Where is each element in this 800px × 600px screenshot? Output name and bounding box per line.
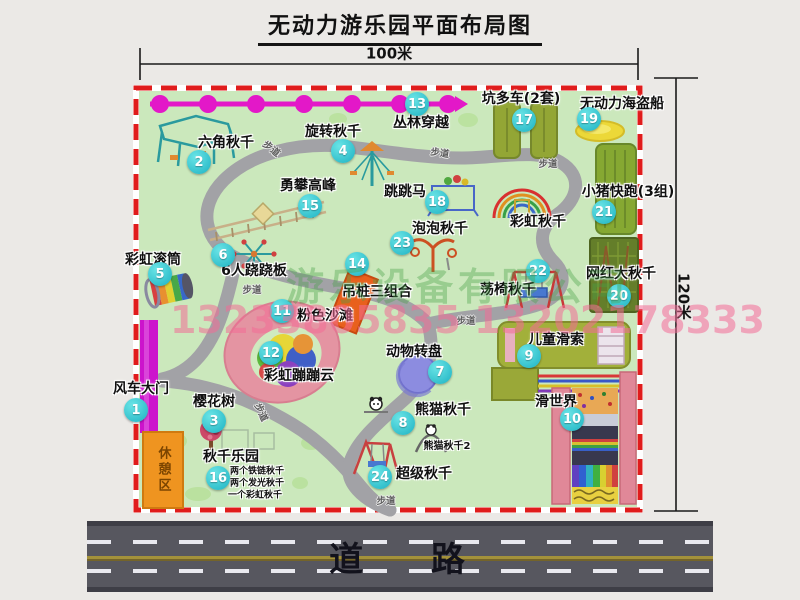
attraction-6-label: 6人跷跷板 (221, 264, 287, 278)
attraction-11-label: 粉色沙滩 (297, 309, 353, 323)
rainbow-swing-label: 彩虹秋千 (510, 215, 566, 229)
attraction-6-badge: 6 (211, 243, 235, 267)
attraction-17-badge: 17 (512, 108, 536, 132)
path-label-2: 步道 (430, 144, 451, 161)
swing-park-note-3: 一个彩虹秋千 (228, 492, 282, 501)
attraction-19-badge: 19 (577, 107, 601, 131)
attraction-7-badge: 7 (428, 360, 452, 384)
attraction-8-label: 熊猫秋千 (415, 403, 471, 417)
swing-park-note-2: 两个发光秋千 (230, 480, 284, 489)
attraction-4-badge: 4 (331, 139, 355, 163)
attraction-10-badge: 10 (560, 407, 584, 431)
path-label-3: 步道 (538, 156, 557, 170)
attraction-13-label: 丛林穿越 (393, 116, 449, 130)
attraction-3-label: 樱花树 (193, 395, 235, 409)
attraction-18-label: 跳跳马 (384, 185, 426, 199)
width-dimension-label: 100米 (366, 43, 412, 64)
attraction-11-badge: 11 (270, 299, 294, 323)
attraction-23-label: 泡泡秋千 (412, 222, 468, 236)
attraction-7-label: 动物转盘 (386, 345, 442, 359)
attraction-12-label: 彩虹蹦蹦云 (264, 369, 334, 383)
panda-swing-2-label: 熊猫秋千2 (424, 442, 471, 452)
attraction-17-label: 坑多车(2套) (482, 92, 561, 106)
attraction-3-badge: 3 (202, 409, 226, 433)
height-dimension-label: 120米 (674, 273, 695, 319)
road-label: 道 路 (87, 526, 713, 587)
attraction-21-badge: 21 (592, 200, 616, 224)
attraction-20-label: 网红大秋千 (586, 267, 656, 281)
attraction-23-badge: 23 (390, 231, 414, 255)
path-label-4: 步道 (242, 282, 261, 296)
attraction-2-label: 六角秋千 (198, 136, 254, 150)
path-label-5: 步道 (456, 313, 475, 327)
attraction-12-badge: 12 (259, 341, 283, 365)
attraction-8-badge: 8 (391, 411, 415, 435)
attraction-15-badge: 15 (298, 194, 322, 218)
slide-world-icon (552, 372, 636, 504)
attraction-1-badge: 1 (124, 398, 148, 422)
attraction-16-label: 秋千乐园 (203, 450, 259, 464)
attraction-5-badge: 5 (148, 262, 172, 286)
attraction-24-badge: 24 (368, 465, 392, 489)
attraction-21-label: 小猪快跑(3组) (582, 185, 675, 199)
attraction-9-label: 儿童滑索 (528, 333, 584, 347)
attraction-4-label: 旋转秋千 (305, 125, 361, 139)
attraction-9-badge: 9 (517, 344, 541, 368)
attraction-16-badge: 16 (206, 466, 230, 490)
path-label-7: 步道 (376, 493, 395, 507)
attraction-20-badge: 20 (607, 284, 631, 308)
swing-park-note-1: 两个铁链秋千 (230, 468, 284, 477)
attraction-22-badge: 22 (526, 259, 550, 283)
attraction-18-badge: 18 (425, 190, 449, 214)
attraction-24-label: 超级秋千 (396, 467, 452, 481)
rest-area-box: 休憩区 (142, 431, 184, 509)
attraction-22-label: 荡椅秋千 (480, 283, 536, 297)
attraction-14-badge: 14 (345, 252, 369, 276)
road: 道 路 (87, 521, 713, 592)
attraction-13-badge: 13 (405, 92, 429, 116)
rest-area-label: 休憩区 (154, 446, 173, 494)
attraction-1-label: 风车大门 (113, 382, 169, 396)
attraction-14-label: 吊桩三组合 (342, 285, 412, 299)
park-layout-screenshot: 无动力游乐园平面布局图 (0, 0, 800, 600)
attraction-2-badge: 2 (187, 150, 211, 174)
attraction-15-label: 勇攀高峰 (280, 179, 336, 193)
